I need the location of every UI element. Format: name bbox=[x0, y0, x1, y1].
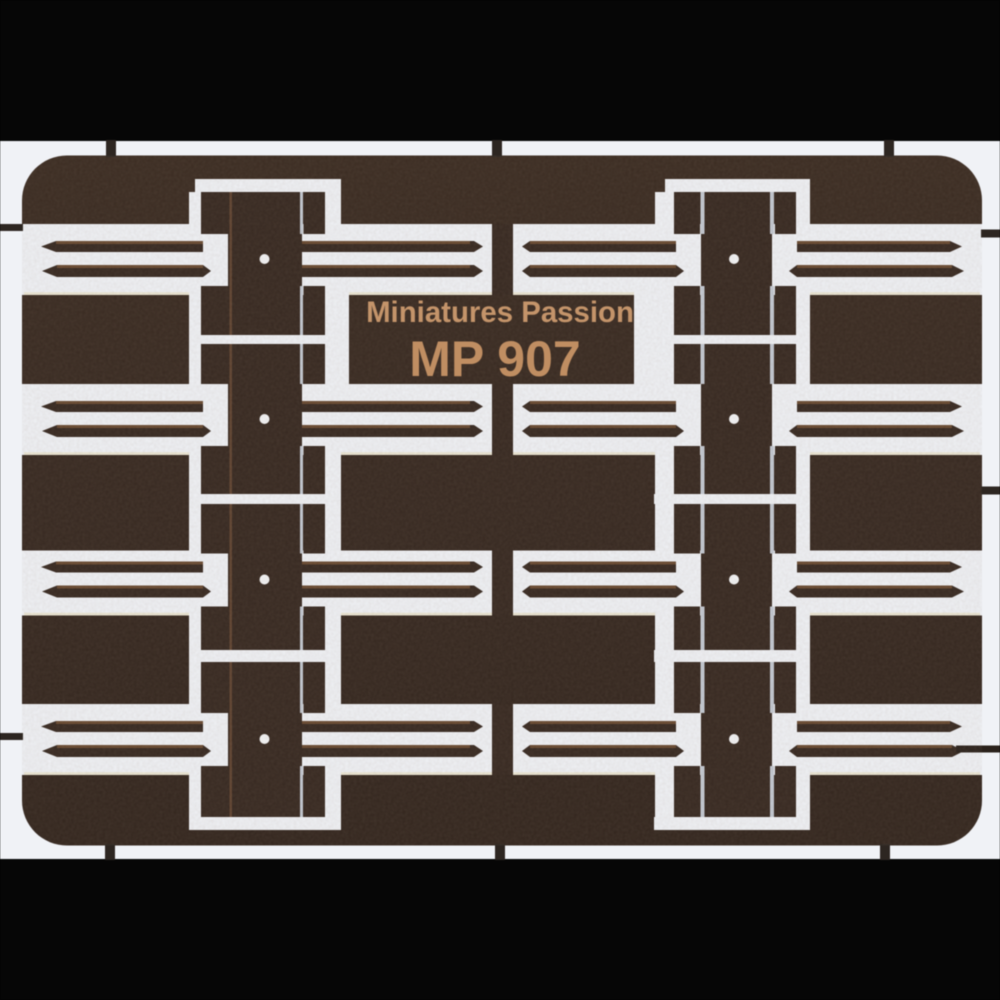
svg-text:MP 907: MP 907 bbox=[409, 331, 580, 387]
svg-text:Miniatures Passion: Miniatures Passion bbox=[366, 296, 634, 329]
